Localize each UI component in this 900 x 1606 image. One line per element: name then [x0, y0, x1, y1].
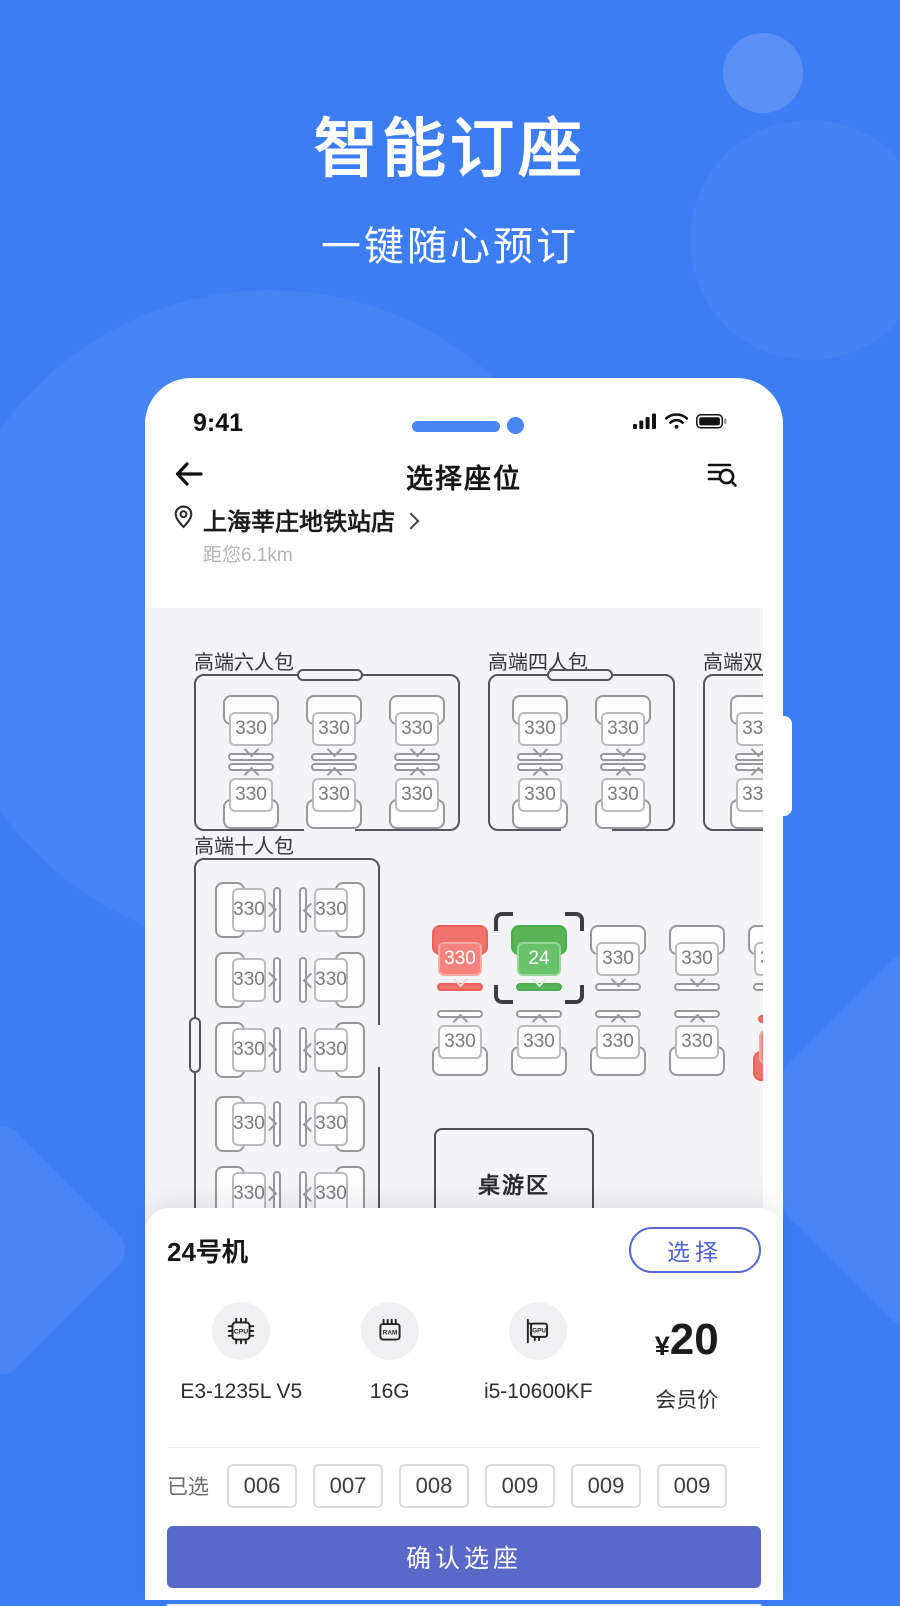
seat-desk	[753, 983, 763, 991]
price-label: 会员价	[655, 1384, 718, 1414]
seat-number: 330	[759, 1030, 763, 1064]
seat-free[interactable]: 330	[730, 695, 763, 761]
seat-number: 330	[395, 778, 439, 812]
seat-number: 330	[438, 1025, 482, 1059]
svg-text:RAM: RAM	[382, 1330, 397, 1337]
seat-number: 330	[312, 778, 356, 812]
seat-free[interactable]: 330	[590, 925, 646, 991]
seat-free[interactable]: 330	[299, 1096, 365, 1152]
divider	[167, 1447, 761, 1448]
seat-free[interactable]: 330	[306, 763, 362, 829]
seat-free[interactable]: 330	[511, 1010, 567, 1076]
seat-number: 330	[517, 1025, 561, 1059]
seat-number: 330	[314, 888, 348, 932]
spec-ram: RAM 16G	[316, 1302, 465, 1414]
seat-number: 330	[601, 778, 645, 812]
door	[547, 669, 613, 681]
gpu-icon: GPU	[509, 1302, 567, 1360]
ram-value: 16G	[370, 1380, 410, 1404]
chevron-right-icon	[403, 512, 420, 529]
bottom-sheet: 24号机 选择 CPU E3-1235L V5	[145, 1208, 783, 1600]
seat-number: 330	[675, 942, 719, 976]
seat-number: 330	[229, 778, 273, 812]
signal-icon	[633, 412, 657, 430]
seat-free[interactable]: 330	[512, 695, 568, 761]
selected-seats-row: 已选 006 007 008 009 009 009	[167, 1464, 761, 1508]
seat-occupied[interactable]: 330	[432, 925, 488, 991]
seat-number: 330	[232, 888, 266, 932]
seat-number: 330	[754, 942, 763, 976]
seat-number: 330	[518, 778, 562, 812]
seat-free[interactable]: 330	[512, 763, 568, 829]
wifi-icon	[664, 412, 689, 430]
seat-free[interactable]: 330	[389, 695, 445, 761]
seat-number: 330	[312, 712, 356, 746]
seat-free[interactable]: 330	[215, 882, 281, 938]
selected-seat-chip[interactable]: 006	[227, 1464, 297, 1508]
seat-free[interactable]: 330	[215, 1022, 281, 1078]
selected-seat-chip[interactable]: 008	[399, 1464, 469, 1508]
phone-mockup: 9:41 选择座	[145, 378, 783, 1600]
spec-cpu: CPU E3-1235L V5	[167, 1302, 316, 1414]
seat-number: 330	[736, 712, 763, 746]
phone-side-button	[776, 716, 792, 816]
select-button[interactable]: 选择	[629, 1227, 761, 1273]
seat-free[interactable]: 330	[389, 763, 445, 829]
seat-free[interactable]: 330	[432, 1010, 488, 1076]
seat-free[interactable]: 330	[223, 763, 279, 829]
seat-number: 330	[314, 958, 348, 1002]
seat-free[interactable]: 330	[730, 763, 763, 829]
seat-free[interactable]: 330	[590, 1010, 646, 1076]
seat-selected[interactable]: 24	[511, 925, 567, 991]
nav-header: 选择座位	[145, 452, 783, 496]
selected-seat-chip[interactable]: 007	[313, 1464, 383, 1508]
price-currency: ¥	[655, 1333, 670, 1360]
status-bar: 9:41	[145, 406, 783, 442]
seat-free[interactable]: 330	[215, 952, 281, 1008]
seat-number: 330	[518, 712, 562, 746]
seat-number: 330	[229, 712, 273, 746]
gpu-value: i5-10600KF	[484, 1380, 593, 1404]
selected-seat-chip[interactable]: 009	[485, 1464, 555, 1508]
seat-number: 330	[232, 1028, 266, 1072]
page-title: 选择座位	[145, 457, 783, 496]
spec-gpu: GPU i5-10600KF	[464, 1302, 613, 1414]
board-game-label: 桌游区	[436, 1168, 592, 1200]
seat-free[interactable]: 330	[223, 695, 279, 761]
seat-number: 330	[395, 712, 439, 746]
seat-number: 330	[232, 1102, 266, 1146]
room-label: 高端十人包	[194, 830, 294, 859]
seat-free[interactable]: 330	[299, 1022, 365, 1078]
seat-free[interactable]: 330	[215, 1096, 281, 1152]
seat-number: 330	[736, 778, 763, 812]
location-pin-icon	[171, 504, 196, 530]
cpu-value: E3-1235L V5	[180, 1380, 302, 1404]
svg-text:GPU: GPU	[532, 1328, 546, 1335]
seat-free[interactable]: 330	[299, 952, 365, 1008]
seat-desk	[758, 1015, 763, 1023]
filter-search-icon[interactable]	[705, 458, 737, 490]
ram-icon: RAM	[361, 1302, 419, 1360]
seat-free[interactable]: 330	[299, 882, 365, 938]
selected-seat-chip[interactable]: 009	[657, 1464, 727, 1508]
store-distance: 距您6.1km	[203, 540, 293, 567]
seat-number: 330	[675, 1025, 719, 1059]
seat-free[interactable]: 330	[748, 925, 763, 991]
seat-number: 330	[601, 712, 645, 746]
seat-map[interactable]: 高端六人包高端四人包高端双人包高端十人包桌游区33033033033033033…	[145, 608, 763, 1248]
hero-title: 智能订座	[0, 98, 900, 190]
confirm-button[interactable]: 确认选座	[167, 1526, 761, 1588]
svg-text:CPU: CPU	[234, 1329, 248, 1336]
notch-dot	[507, 417, 524, 434]
seat-number: 330	[596, 942, 640, 976]
decor-shape	[0, 1116, 134, 1385]
spec-row: CPU E3-1235L V5 RAM 16G	[167, 1302, 761, 1414]
seat-number: 330	[438, 942, 482, 976]
seat-free[interactable]: 330	[595, 763, 651, 829]
battery-icon	[696, 414, 727, 429]
seat-free[interactable]: 330	[669, 1010, 725, 1076]
status-time: 9:41	[193, 409, 243, 438]
room-label: 高端双人包	[703, 646, 763, 675]
seat-number: 330	[232, 958, 266, 1002]
door	[297, 669, 363, 681]
store-name: 上海莘庄地铁站店	[203, 502, 395, 537]
hero-subtitle: 一键随心预订	[0, 214, 900, 272]
seat-number: 330	[314, 1028, 348, 1072]
notch-pill	[412, 421, 500, 432]
seat-free[interactable]: 330	[669, 925, 725, 991]
room-label: 高端六人包	[194, 646, 294, 675]
seat-free[interactable]: 330	[595, 695, 651, 761]
machine-title: 24号机	[167, 1232, 248, 1269]
wall-opening	[376, 1025, 381, 1067]
seat-free[interactable]: 330	[306, 695, 362, 761]
seat-number: 330	[314, 1102, 348, 1146]
cpu-icon: CPU	[212, 1302, 270, 1360]
seat-number: 330	[596, 1025, 640, 1059]
seat-number: 24	[517, 942, 561, 976]
door	[189, 1017, 201, 1073]
spec-price: ¥20 会员价	[613, 1302, 762, 1414]
seat-occupied[interactable]: 330	[753, 1015, 763, 1081]
selected-label: 已选	[167, 1471, 209, 1501]
selected-seat-chip[interactable]: 009	[571, 1464, 641, 1508]
price-amount: 20	[670, 1320, 719, 1360]
